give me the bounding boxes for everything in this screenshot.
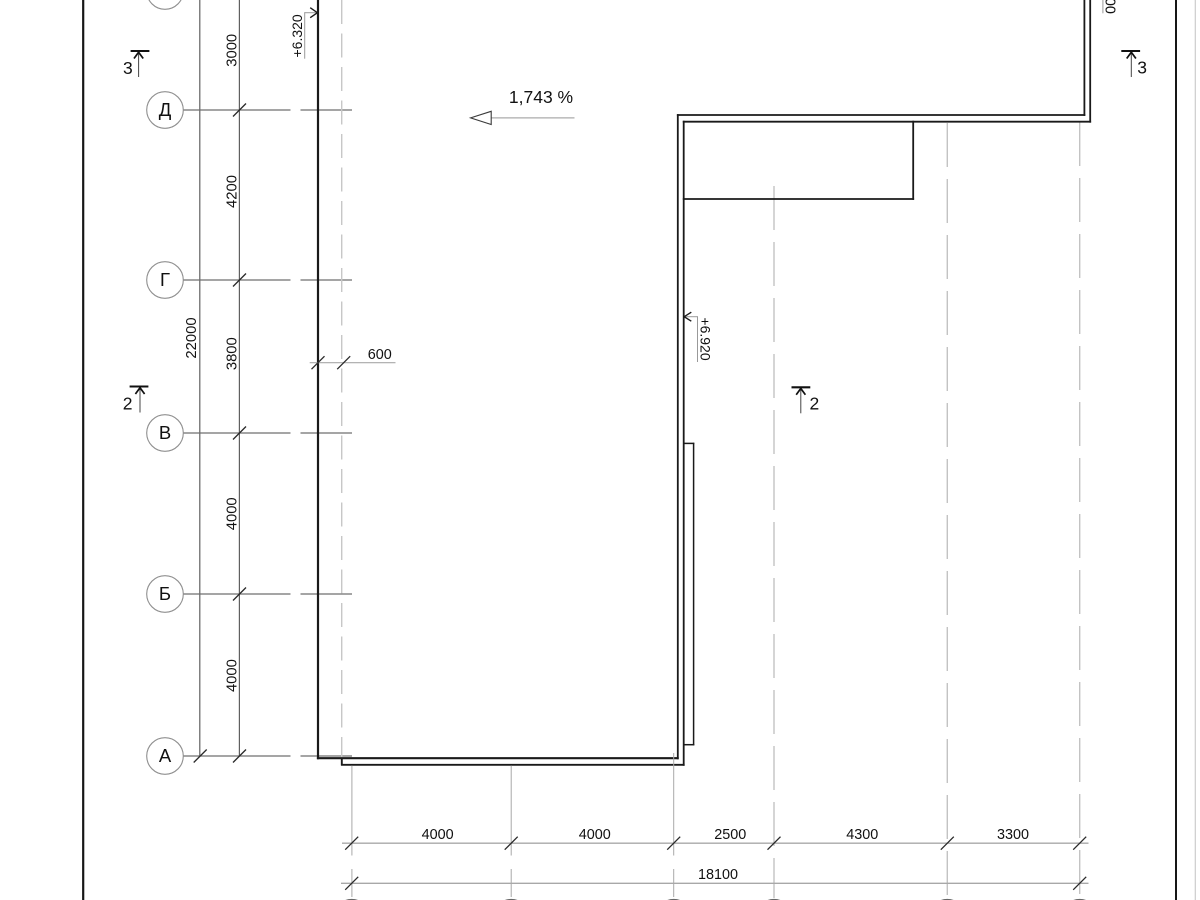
svg-text:Б: Б xyxy=(159,583,171,604)
svg-text:4300: 4300 xyxy=(846,827,878,843)
svg-text:В: В xyxy=(159,422,171,443)
svg-text:3: 3 xyxy=(123,58,133,78)
svg-text:+6.920: +6.920 xyxy=(698,317,714,360)
svg-text:18100: 18100 xyxy=(698,867,738,883)
svg-text:2: 2 xyxy=(810,394,820,414)
svg-text:3800: 3800 xyxy=(224,337,240,370)
svg-text:+6.320: +6.320 xyxy=(289,14,305,57)
svg-text:3000: 3000 xyxy=(224,34,240,67)
svg-text:Д: Д xyxy=(159,99,172,120)
svg-text:1,743 %: 1,743 % xyxy=(509,87,573,107)
svg-text:4000: 4000 xyxy=(422,827,454,843)
svg-text:4000: 4000 xyxy=(579,827,611,843)
svg-text:3300: 3300 xyxy=(997,827,1029,843)
svg-text:А: А xyxy=(159,745,172,766)
svg-text:3: 3 xyxy=(1137,58,1147,78)
svg-text:Г: Г xyxy=(160,269,170,290)
svg-text:4200: 4200 xyxy=(224,175,240,208)
svg-text:2500: 2500 xyxy=(714,827,746,843)
svg-text:2: 2 xyxy=(123,394,133,414)
svg-text:4000: 4000 xyxy=(224,659,240,692)
svg-text:22000: 22000 xyxy=(184,317,200,358)
svg-text:4000: 4000 xyxy=(224,497,240,530)
svg-text:600: 600 xyxy=(368,347,392,363)
svg-text:00: 00 xyxy=(1103,0,1119,14)
